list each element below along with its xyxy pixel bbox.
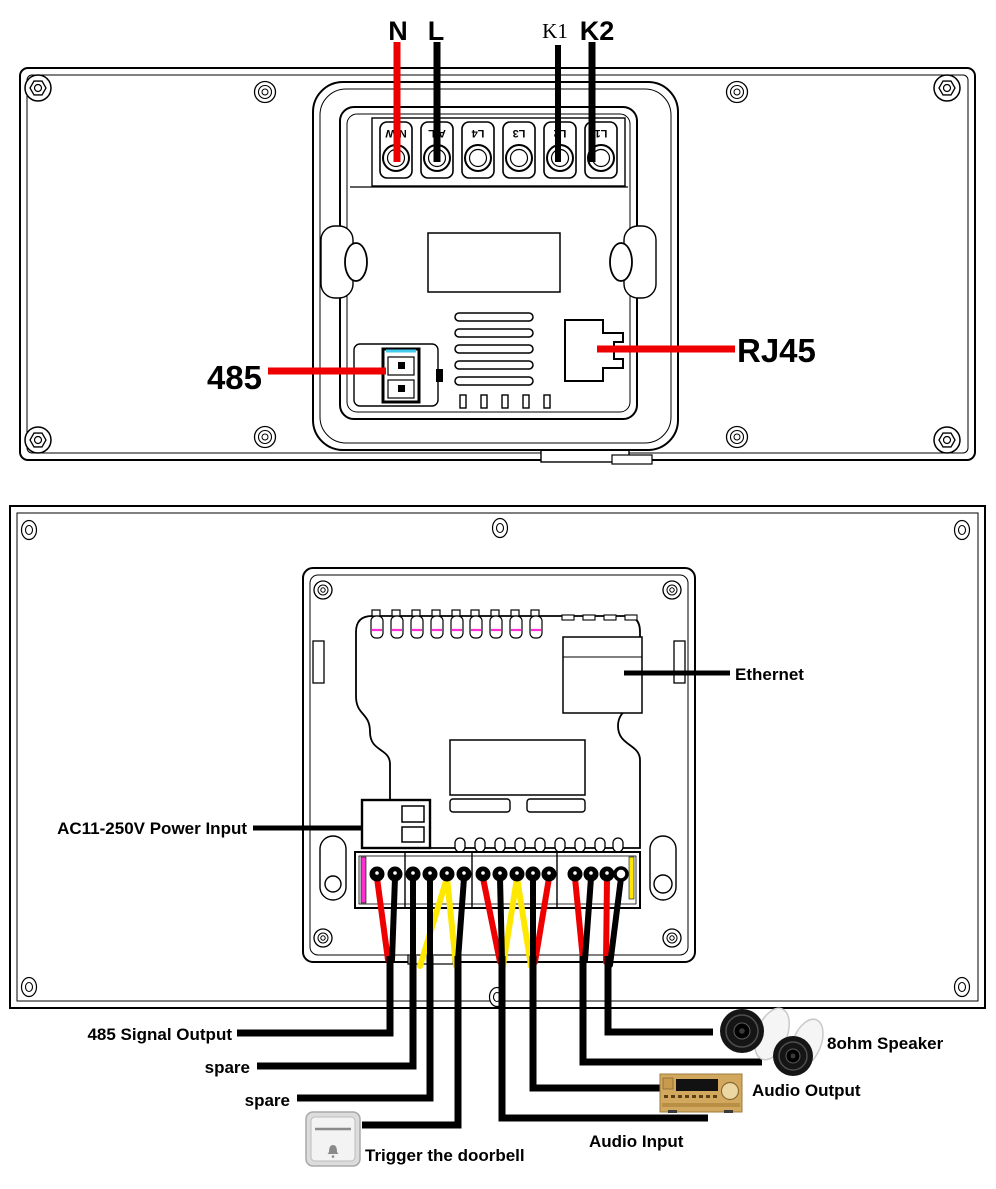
top-pins (371, 610, 542, 638)
label-audio-input: Audio Input (589, 1132, 684, 1151)
bottom-device-face (355, 610, 642, 908)
label-k2: K2 (580, 16, 615, 46)
label-trigger-doorbell: Trigger the doorbell (365, 1146, 525, 1165)
top-device-module: N/W A/L L4 L3 L2 L1 (313, 82, 678, 450)
center-cutout (428, 233, 560, 292)
terminal-head-open (615, 868, 627, 880)
label-n: N (388, 16, 408, 46)
label-rj45: RJ45 (737, 332, 816, 369)
top-diagram: N/W A/L L4 L3 L2 L1 (20, 16, 975, 464)
label-l: L (428, 16, 445, 46)
label-audio-output: Audio Output (752, 1081, 861, 1100)
keyhole-left (320, 836, 346, 900)
audio-receiver-icon (660, 1074, 742, 1113)
terminal-label-4: L3 (513, 127, 526, 139)
label-ethernet: Ethernet (735, 665, 804, 684)
label-spare-2: spare (245, 1091, 290, 1110)
power-connector (362, 800, 430, 848)
terminal-label-6: L1 (595, 127, 608, 139)
label-8ohm-speaker: 8ohm Speaker (827, 1034, 944, 1053)
frame-slot-left (313, 641, 324, 683)
label-spare-1: spare (205, 1058, 250, 1077)
top-terminal-strip: N/W A/L L4 L3 L2 L1 (350, 118, 628, 187)
terminal-label-3: L4 (471, 127, 485, 139)
rs485-connector (354, 344, 443, 406)
terminal-heads (370, 867, 628, 882)
label-power-input: AC11-250V Power Input (57, 819, 247, 838)
plate-bottom-tab-small (612, 455, 652, 464)
label-485: 485 (207, 359, 262, 396)
label-k1: K1 (542, 19, 568, 43)
clamp-comb (455, 838, 623, 852)
frame-slot-right (674, 641, 685, 683)
center-cutout-bottom (450, 740, 585, 795)
keyhole-right (650, 836, 676, 900)
strip-magenta-stripe (361, 857, 366, 903)
doorbell-button-icon (306, 1112, 360, 1166)
connector-clip (436, 369, 443, 382)
strip-yellow-stripe (629, 857, 634, 899)
bottom-diagram: AC11-250V Power Input Ethernet 485 Signa… (10, 506, 985, 1166)
wiring-diagram-page: N/W A/L L4 L3 L2 L1 (0, 0, 996, 1189)
label-485-signal-output: 485 Signal Output (87, 1025, 232, 1044)
